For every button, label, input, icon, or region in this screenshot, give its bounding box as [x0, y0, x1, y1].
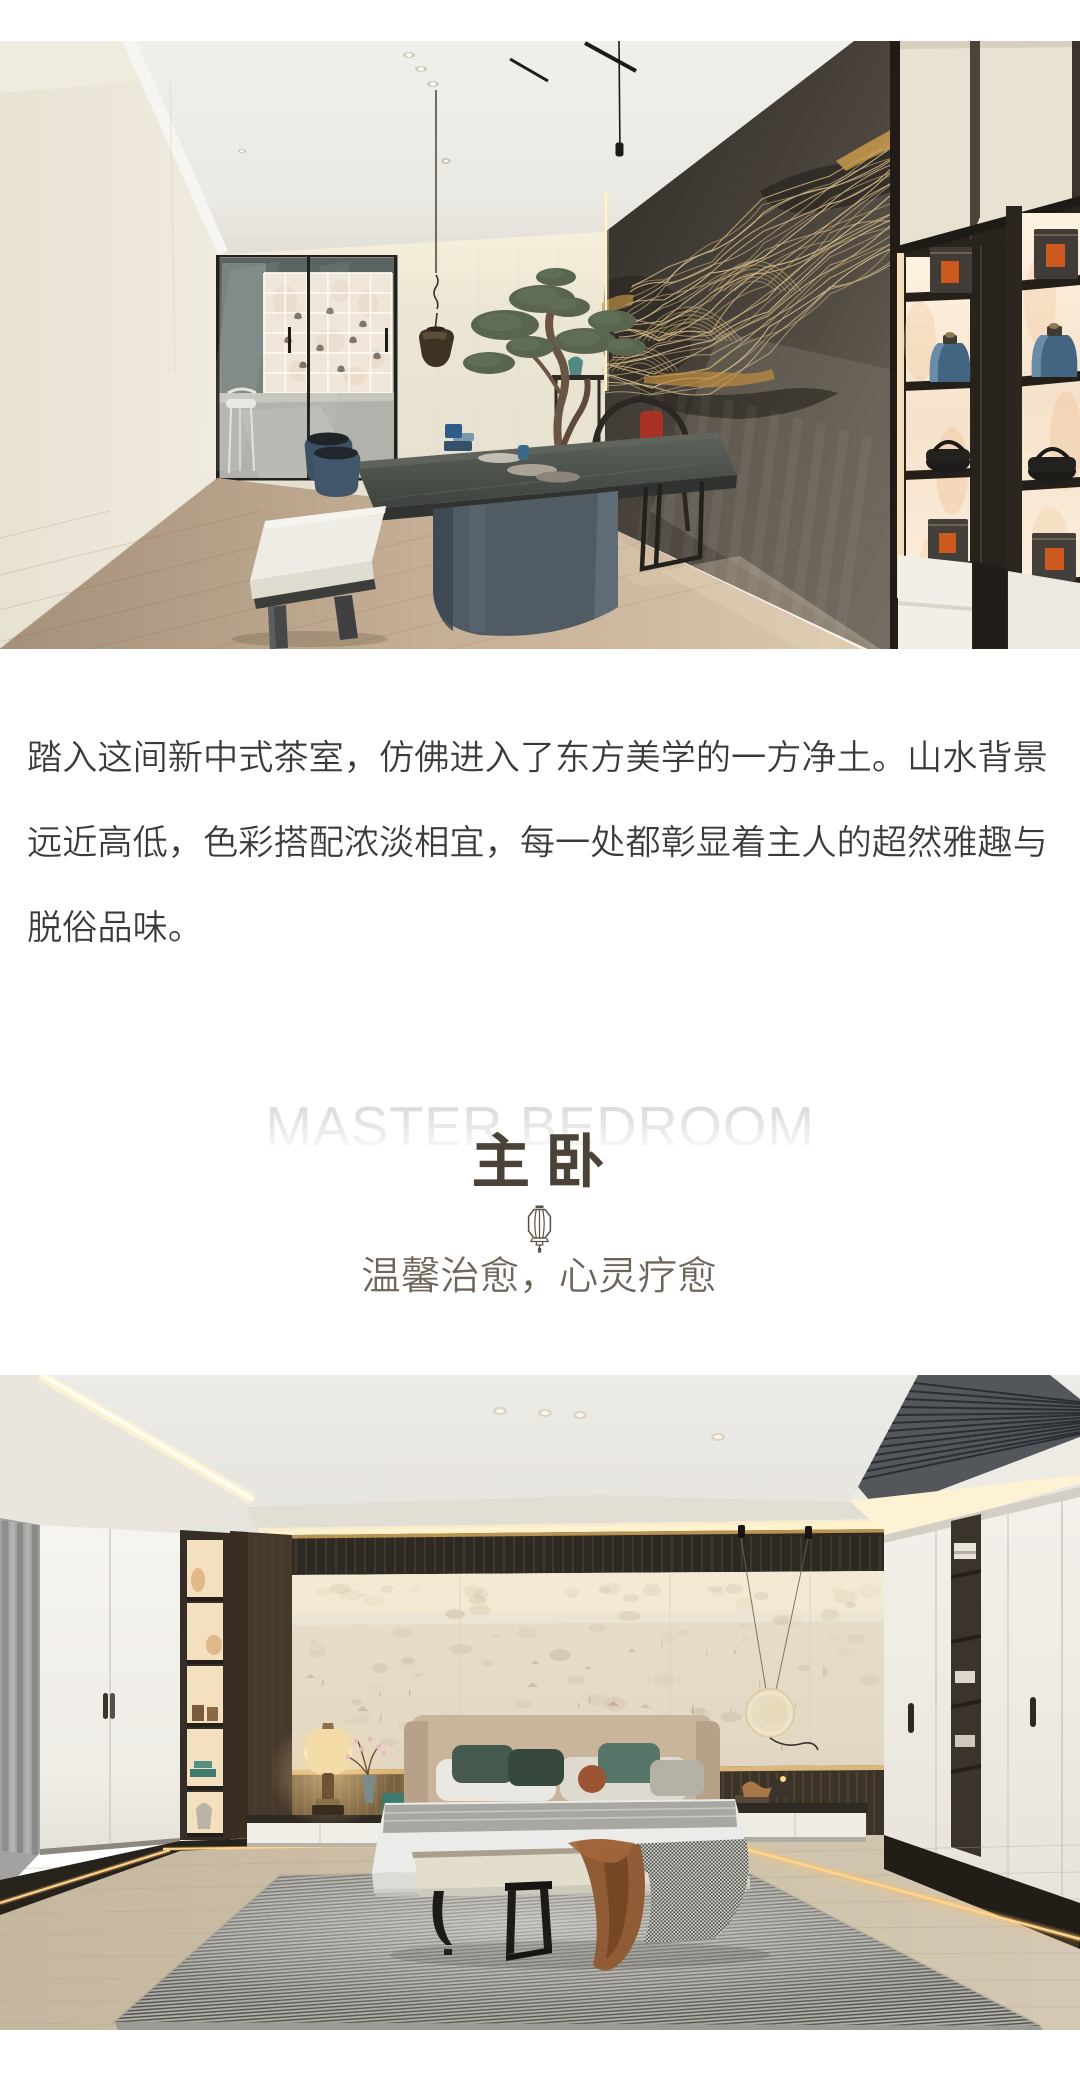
svg-text:MASTER BEDROOM: MASTER BEDROOM — [265, 1094, 814, 1157]
